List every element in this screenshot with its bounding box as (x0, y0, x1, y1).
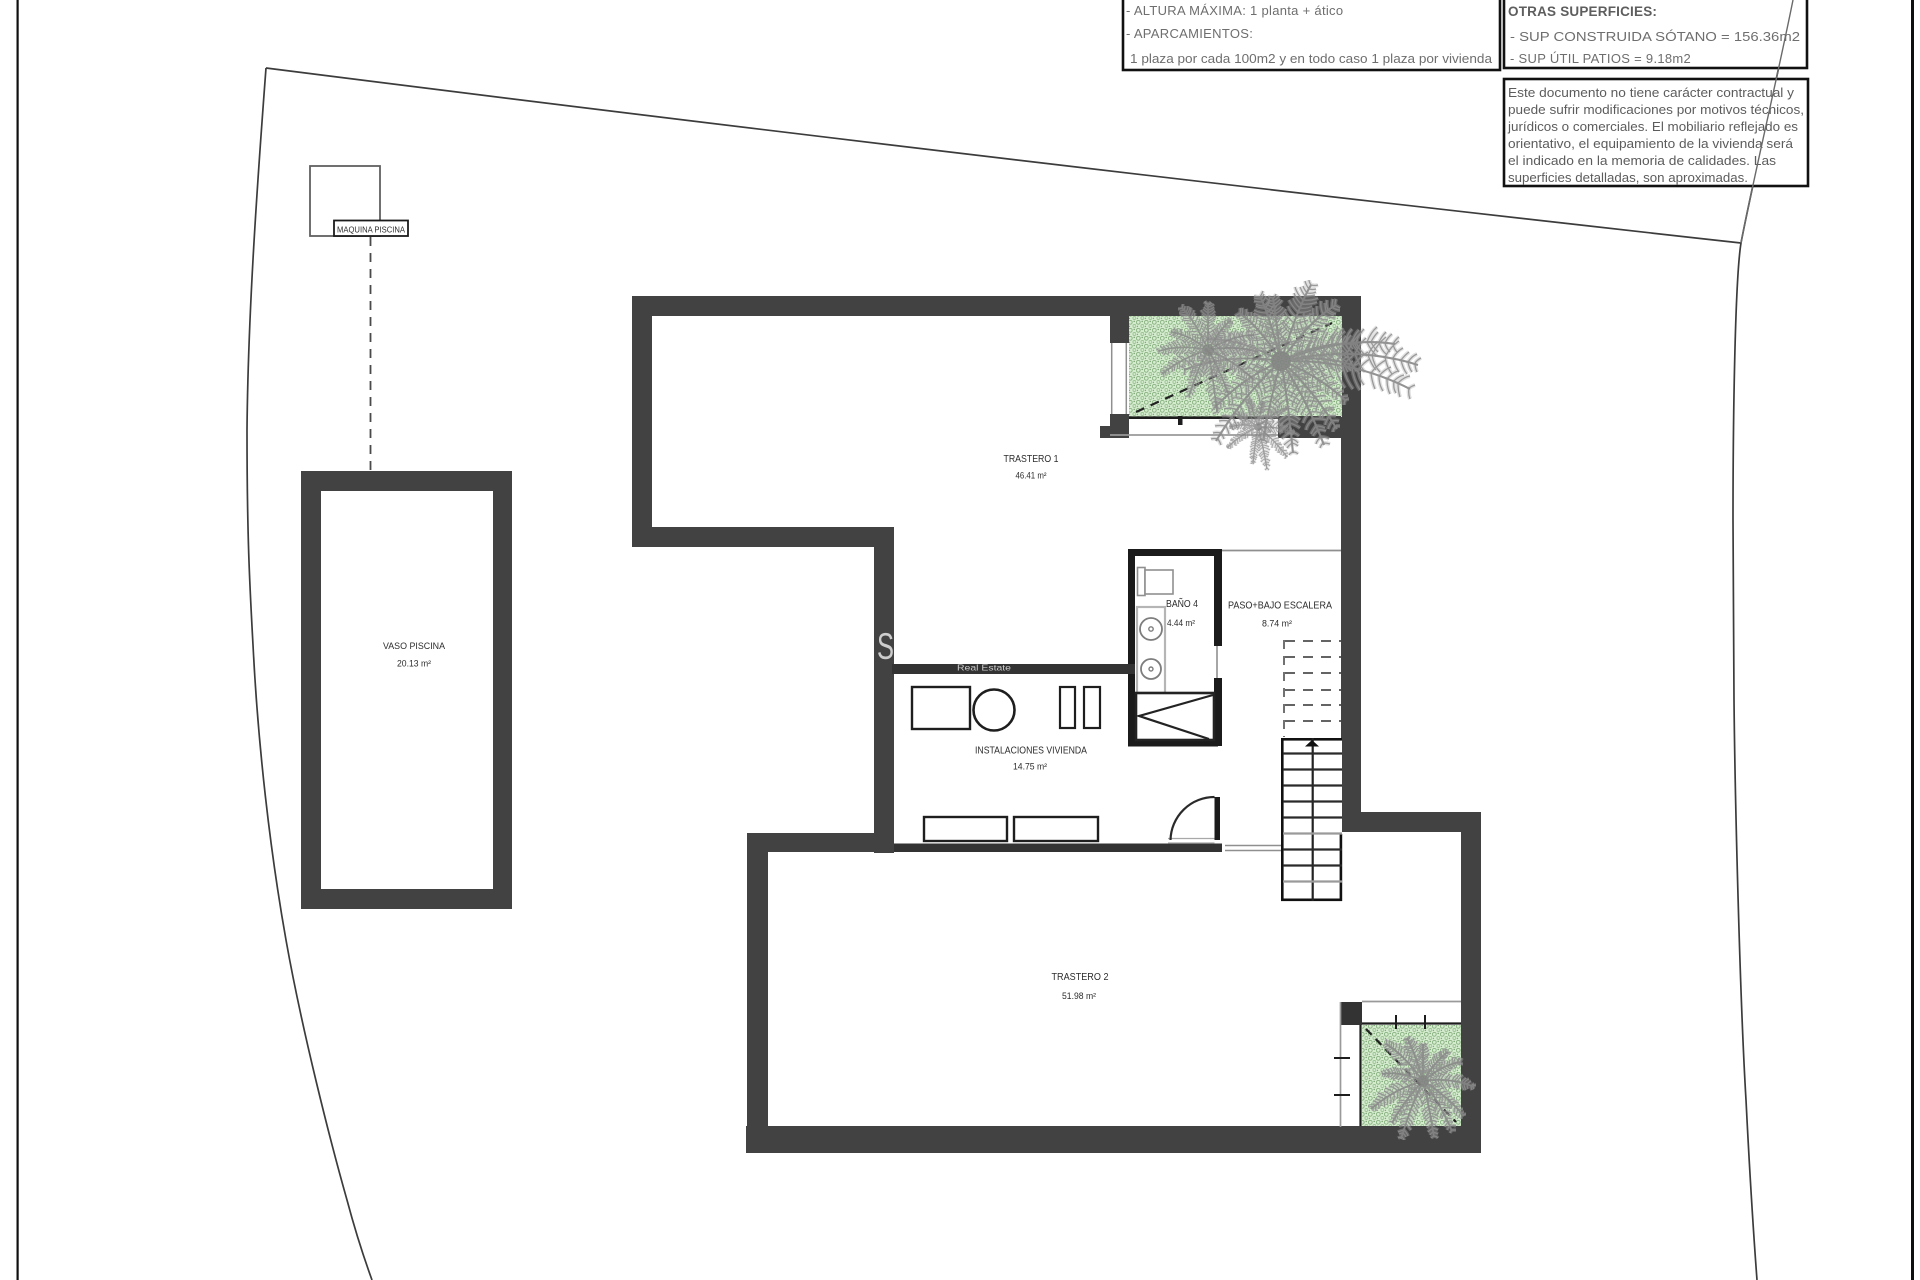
svg-text:20.13 m²: 20.13 m² (397, 659, 431, 669)
svg-text:4.44 m²: 4.44 m² (1167, 618, 1195, 628)
svg-text:puede sufrir modificaciones po: puede sufrir modificaciones por motivos … (1508, 102, 1804, 117)
svg-text:PASO+BAJO ESCALERA: PASO+BAJO ESCALERA (1228, 600, 1332, 612)
svg-text:- SUP CONSTRUIDA SÓTANO = 15: - SUP CONSTRUIDA SÓTANO = 156.36m2 (1510, 29, 1800, 44)
svg-text:- APARCAMIENTOS:: - APARCAMIENTOS: (1126, 26, 1253, 41)
svg-text:superficies detalladas, son ap: superficies detalladas, son aproximadas. (1508, 170, 1748, 185)
svg-text:- SUP ÚTIL PATIOS = 9.18m2: - SUP ÚTIL PATIOS = 9.18m2 (1510, 51, 1691, 66)
svg-text:BAÑO 4: BAÑO 4 (1166, 597, 1198, 610)
svg-text:Este documento no tiene caráct: Este documento no tiene carácter contrac… (1508, 85, 1795, 100)
svg-text:el indicado en la memoria de c: el indicado en la memoria de calidades. … (1508, 153, 1777, 168)
svg-text:51.98 m²: 51.98 m² (1062, 991, 1096, 1001)
svg-text:TRASTERO 1: TRASTERO 1 (1004, 453, 1059, 465)
svg-text:VASO PISCINA: VASO PISCINA (383, 641, 446, 652)
svg-text:jurídicos o comerciales. El mo: jurídicos o comerciales. El mobiliario r… (1507, 119, 1799, 134)
svg-text:- ALTURA MÁXIMA: 1 planta + át: - ALTURA MÁXIMA: 1 planta + ático (1126, 3, 1343, 18)
svg-text:OTRAS SUPERFICIES:: OTRAS SUPERFICIES: (1508, 4, 1657, 19)
svg-text:S: S (877, 626, 894, 667)
svg-text:TRASTERO 2: TRASTERO 2 (1052, 971, 1109, 983)
svg-text:1 plaza por cada 100m2 y en to: 1 plaza por cada 100m2 y en todo caso 1 … (1130, 51, 1493, 66)
svg-text:14.75 m²: 14.75 m² (1013, 762, 1047, 772)
svg-text:INSTALACIONES VIVIENDA: INSTALACIONES VIVIENDA (975, 745, 1087, 757)
svg-text:46.41 m²: 46.41 m² (1016, 471, 1047, 481)
svg-text:8.74 m²: 8.74 m² (1262, 619, 1292, 629)
svg-text:Real Estate: Real Estate (957, 663, 1011, 673)
svg-text:orientativo, el equipamiento d: orientativo, el equipamiento de la vivie… (1508, 136, 1794, 151)
svg-text:MAQUINA PISCINA: MAQUINA PISCINA (337, 226, 406, 235)
